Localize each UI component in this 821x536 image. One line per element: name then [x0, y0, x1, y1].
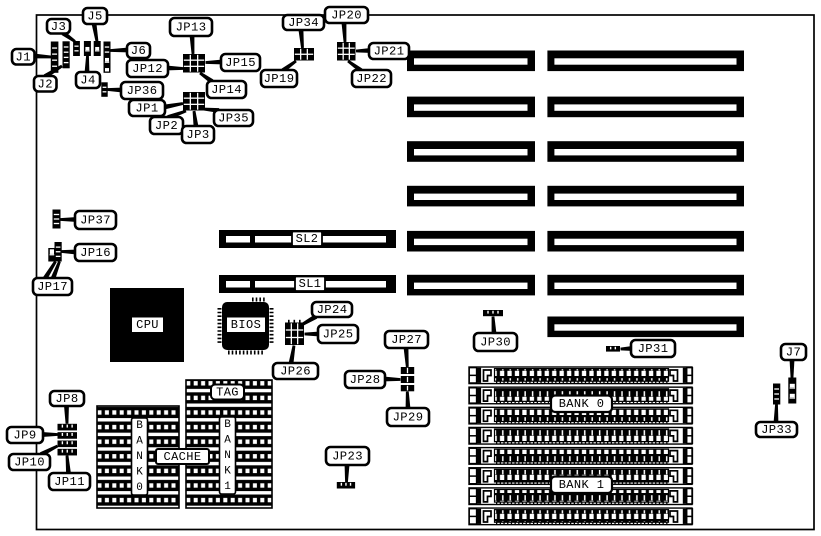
svg-text:JP19: JP19 [264, 72, 295, 86]
svg-text:JP2: JP2 [155, 119, 178, 133]
svg-text:JP12: JP12 [132, 62, 163, 76]
svg-text:J1: J1 [16, 50, 31, 64]
svg-text:JP15: JP15 [225, 56, 256, 70]
svg-text:N: N [136, 451, 143, 463]
svg-text:B: B [224, 419, 231, 431]
svg-text:0: 0 [136, 482, 143, 494]
svg-text:JP27: JP27 [391, 333, 422, 347]
svg-text:JP10: JP10 [14, 456, 45, 470]
svg-text:JP13: JP13 [176, 21, 207, 35]
svg-text:A: A [136, 436, 143, 448]
svg-text:JP34: JP34 [288, 16, 319, 30]
svg-text:BIOS: BIOS [231, 318, 261, 332]
svg-text:JP20: JP20 [331, 9, 362, 23]
svg-text:JP24: JP24 [317, 303, 348, 317]
svg-text:JP16: JP16 [80, 246, 111, 260]
svg-text:JP26: JP26 [280, 365, 311, 379]
svg-text:JP28: JP28 [350, 373, 381, 387]
svg-text:1: 1 [224, 481, 231, 493]
svg-text:CPU: CPU [136, 318, 159, 332]
svg-text:A: A [224, 435, 231, 447]
svg-text:JP11: JP11 [54, 475, 85, 489]
svg-text:J6: J6 [131, 44, 146, 58]
svg-text:J4: J4 [80, 74, 95, 88]
svg-text:JP31: JP31 [638, 342, 669, 356]
svg-text:J3: J3 [51, 20, 66, 34]
svg-text:SL1: SL1 [299, 277, 322, 291]
svg-text:JP14: JP14 [211, 83, 242, 97]
svg-text:BANK 0: BANK 0 [559, 397, 605, 411]
svg-text:JP29: JP29 [393, 411, 424, 425]
svg-text:J2: J2 [38, 77, 53, 91]
svg-text:J5: J5 [87, 10, 102, 24]
svg-text:JP23: JP23 [332, 450, 363, 464]
svg-text:JP17: JP17 [37, 280, 68, 294]
svg-text:JP25: JP25 [323, 328, 354, 342]
svg-text:JP22: JP22 [356, 72, 387, 86]
svg-text:B: B [136, 420, 143, 432]
svg-text:JP3: JP3 [186, 128, 209, 142]
svg-text:J7: J7 [786, 346, 801, 360]
svg-text:JP30: JP30 [480, 336, 511, 350]
svg-text:CACHE: CACHE [163, 450, 201, 464]
svg-text:TAG: TAG [216, 386, 239, 400]
svg-text:JP33: JP33 [761, 423, 792, 437]
svg-text:N: N [224, 450, 231, 462]
svg-text:JP21: JP21 [374, 45, 405, 59]
svg-text:SL2: SL2 [296, 232, 319, 246]
svg-text:BANK 1: BANK 1 [559, 478, 605, 492]
svg-text:K: K [224, 465, 231, 477]
svg-text:JP8: JP8 [55, 392, 78, 406]
svg-text:JP9: JP9 [13, 429, 36, 443]
svg-text:JP36: JP36 [127, 84, 158, 98]
svg-text:JP35: JP35 [218, 112, 249, 126]
svg-text:JP37: JP37 [80, 214, 111, 228]
svg-text:K: K [136, 466, 143, 478]
svg-text:JP1: JP1 [135, 102, 158, 116]
